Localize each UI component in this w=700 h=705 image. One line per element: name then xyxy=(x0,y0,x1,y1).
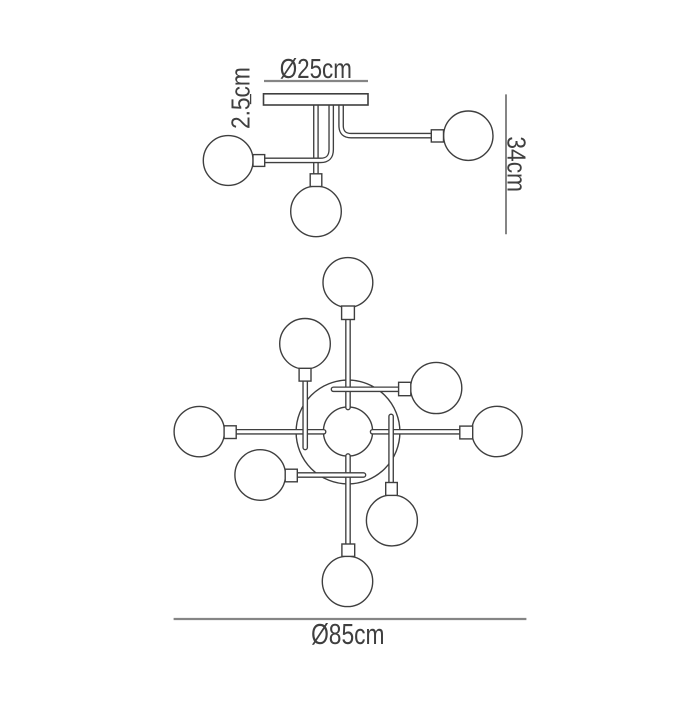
svg-text:34cm: 34cm xyxy=(501,136,530,192)
svg-text:2.5cm: 2.5cm xyxy=(227,67,256,129)
svg-text:Ø85cm: Ø85cm xyxy=(311,620,384,651)
svg-text:Ø25cm: Ø25cm xyxy=(280,54,352,85)
